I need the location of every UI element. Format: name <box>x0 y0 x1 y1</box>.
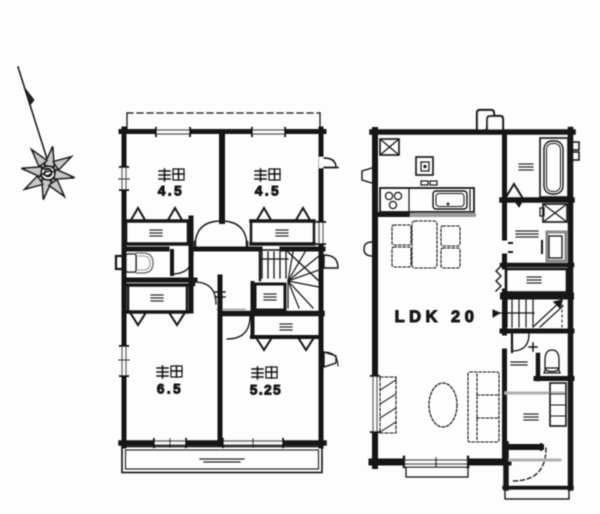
svg-text:6.5: 6.5 <box>157 382 183 397</box>
svg-text:LDK 20: LDK 20 <box>395 308 479 326</box>
svg-text:5.25: 5.25 <box>250 383 282 398</box>
svg-text:4.5: 4.5 <box>158 184 184 199</box>
svg-text:4.5: 4.5 <box>255 184 281 199</box>
